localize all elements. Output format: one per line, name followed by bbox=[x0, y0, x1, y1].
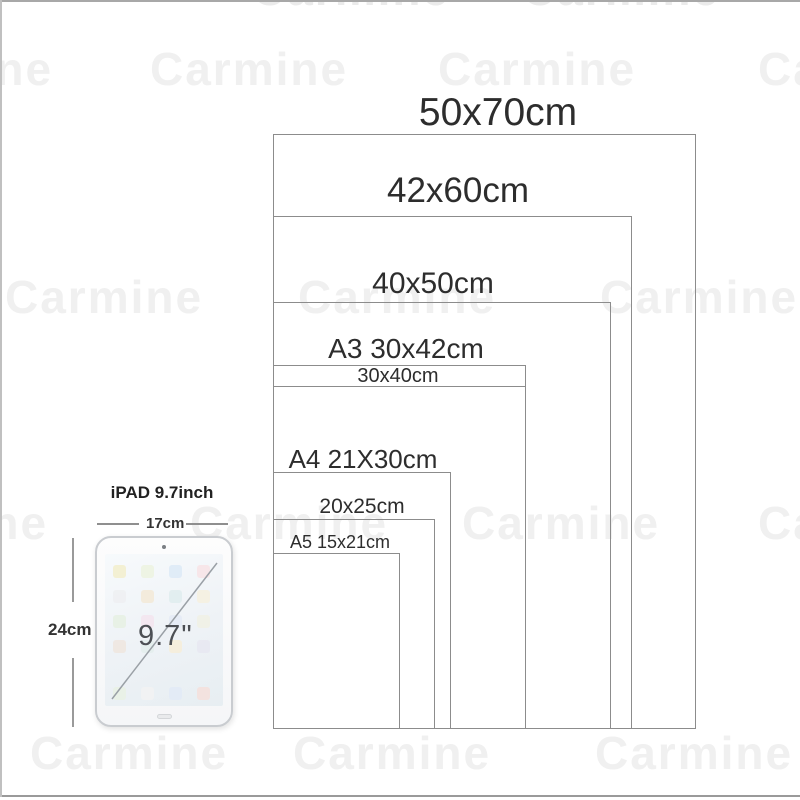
size-label-a5: A5 15x21cm bbox=[290, 533, 390, 553]
size-label-a4: A4 21X30cm bbox=[289, 445, 438, 474]
watermark: Carmine bbox=[293, 726, 491, 780]
watermark: Carmine bbox=[0, 42, 53, 96]
watermark: Carmine bbox=[0, 496, 48, 550]
ipad-height-label: 24cm bbox=[48, 620, 91, 640]
size-label-30x40: 30x40cm bbox=[357, 365, 438, 387]
width-dash-right bbox=[186, 523, 228, 525]
size-comparison-diagram: Carmine Carmine Carmine Carmine Carmine … bbox=[0, 0, 800, 800]
image-left-border bbox=[0, 0, 2, 797]
height-dash-bottom bbox=[72, 658, 74, 727]
watermark: Carmine bbox=[30, 726, 228, 780]
size-label-a3: A3 30x42cm bbox=[328, 334, 484, 365]
watermark: Carmine bbox=[758, 42, 800, 96]
watermark: Carmine bbox=[758, 496, 800, 550]
size-label-42x60: 42x60cm bbox=[387, 172, 529, 211]
ipad-screen: 9.7" bbox=[105, 554, 223, 706]
image-top-border bbox=[0, 0, 800, 2]
height-dash-top bbox=[72, 538, 74, 602]
ipad-width-label: 17cm bbox=[146, 515, 184, 532]
watermark: Carmine bbox=[5, 270, 203, 324]
size-rect-a5-15x21 bbox=[273, 553, 400, 729]
ipad-home-button bbox=[157, 714, 172, 719]
watermark: Carmine bbox=[252, 0, 450, 16]
size-label-20x25: 20x25cm bbox=[319, 495, 404, 518]
ipad-illustration: 9.7" bbox=[95, 536, 233, 727]
size-label-50x70: 50x70cm bbox=[419, 92, 577, 135]
width-dash-left bbox=[97, 523, 139, 525]
watermark: Carmine bbox=[438, 42, 636, 96]
watermark: Carmine bbox=[522, 0, 720, 16]
ipad-diagonal-label: 9.7" bbox=[138, 620, 193, 653]
ipad-title: iPAD 9.7inch bbox=[111, 483, 214, 503]
image-bottom-border bbox=[0, 795, 800, 797]
watermark: Carmine bbox=[150, 42, 348, 96]
size-label-40x50: 40x50cm bbox=[372, 267, 494, 300]
watermark: Carmine bbox=[595, 726, 793, 780]
ipad-camera-dot bbox=[162, 545, 166, 549]
